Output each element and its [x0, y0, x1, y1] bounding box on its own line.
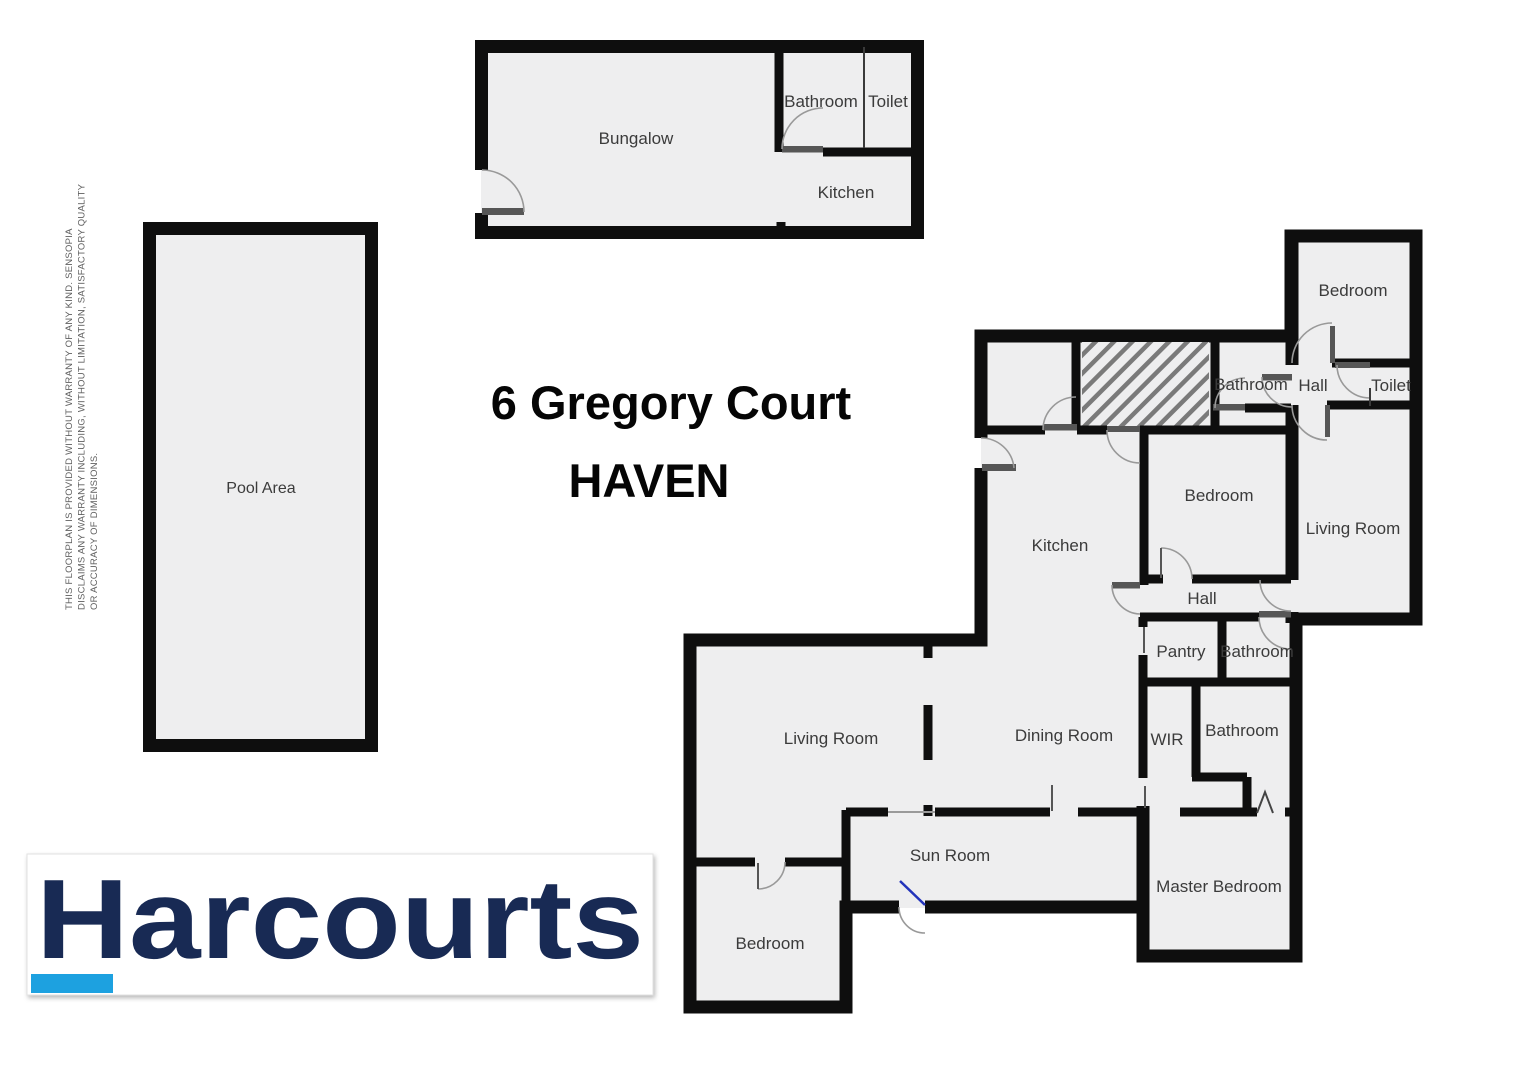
room-label-bungalow: Bungalow: [599, 129, 674, 148]
room-label-bathroom-n: Bathroom: [1214, 375, 1288, 394]
room-label-bedroom-sw: Bedroom: [736, 934, 805, 953]
property-title-line2: HAVEN: [568, 454, 729, 507]
room-label-pantry: Pantry: [1156, 642, 1206, 661]
disclaimer-line3: OR ACCURACY OF DIMENSIONS.: [89, 453, 100, 610]
room-label-bungalow-toilet: Toilet: [868, 92, 908, 111]
disclaimer-line1: THIS FLOORPLAN IS PROVIDED WITHOUT WARRA…: [64, 228, 75, 610]
room-label-dining-room: Dining Room: [1015, 726, 1113, 745]
logo-cyan-bar: [31, 974, 113, 993]
room-label-toilet-n: Toilet: [1371, 376, 1411, 395]
sunroom-gap-outer: [899, 908, 925, 915]
room-label-wir: WIR: [1150, 730, 1183, 749]
room-label-bedroom-ne: Bedroom: [1319, 281, 1388, 300]
disclaimer-text: THIS FLOORPLAN IS PROVIDED WITHOUT WARRA…: [64, 183, 100, 610]
room-label-master-bedroom: Master Bedroom: [1156, 877, 1282, 896]
hatched-area: [1082, 342, 1209, 428]
room-label-bathroom-c: Bathroom: [1220, 642, 1294, 661]
room-label-bathroom-s: Bathroom: [1205, 721, 1279, 740]
room-label-sun-room: Sun Room: [910, 846, 990, 865]
bungalow-outline: [482, 47, 918, 233]
disclaimer-line2: DISCLAIMS ANY WARRANTY INCLUDING, WITHOU…: [77, 183, 88, 610]
pool-area-floorplan: Pool Area: [150, 229, 372, 746]
room-label-living-room-e: Living Room: [1306, 519, 1401, 538]
floorplan-canvas: Bungalow Bathroom Toilet Kitchen Pool Ar…: [0, 0, 1516, 1080]
room-label-pool-area: Pool Area: [226, 480, 295, 497]
harcourts-logo: Harcourts: [27, 854, 653, 995]
room-label-kitchen: Kitchen: [1032, 536, 1089, 555]
room-label-living-room-w: Living Room: [784, 729, 879, 748]
bungalow-floorplan: Bungalow Bathroom Toilet Kitchen: [473, 46, 918, 239]
floorplan-page: Bungalow Bathroom Toilet Kitchen Pool Ar…: [0, 0, 1516, 1080]
bungalow-door-gap-inner: [481, 170, 488, 213]
main-house-floorplan: Bedroom Bathroom Hall Toilet Kitchen Bed…: [690, 236, 1416, 1007]
bathroom-door-leaf: [782, 146, 823, 153]
entry-gap-outer: [974, 438, 981, 468]
room-label-bedroom-c: Bedroom: [1185, 486, 1254, 505]
bungalow-door-gap-outer: [473, 170, 481, 213]
room-label-hall-n: Hall: [1298, 376, 1327, 395]
main-house-outline: [690, 236, 1416, 1007]
logo-wordmark: Harcourts: [36, 856, 644, 982]
entry-door-leaf: [482, 208, 524, 215]
room-label-bungalow-kitchen: Kitchen: [818, 183, 875, 202]
room-label-hall-c: Hall: [1187, 589, 1216, 608]
property-title: 6 Gregory Court HAVEN: [491, 376, 852, 507]
room-label-bungalow-bathroom: Bathroom: [784, 92, 858, 111]
entry-gap-inner: [981, 438, 988, 468]
property-title-line1: 6 Gregory Court: [491, 376, 852, 429]
